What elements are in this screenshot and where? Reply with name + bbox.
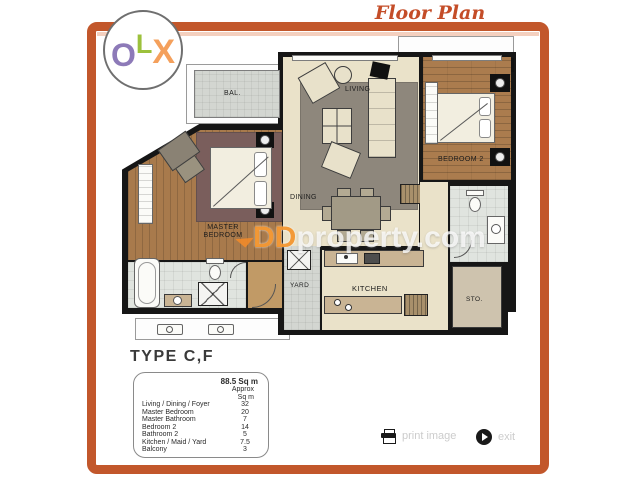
balcony-door: [292, 55, 398, 61]
olx-letter-o: O: [111, 39, 136, 71]
bathtub: [134, 258, 160, 308]
room-kitchen-label: KITCHEN: [352, 284, 388, 293]
bedroom2-window: [432, 55, 502, 61]
ac-unit-dot: [217, 326, 224, 333]
room-dining-label: DINING: [290, 194, 317, 201]
room-living-label: LIVING: [345, 86, 370, 93]
table-row: Kitchen / Maid / Yard7.5: [142, 439, 258, 447]
exit-label: exit: [498, 431, 515, 443]
coffee-table: [322, 108, 352, 144]
nightstand: [490, 148, 510, 166]
shower: [198, 282, 228, 306]
print-image-label: print image: [402, 430, 456, 442]
table-row: Bedroom 214: [142, 424, 258, 432]
room-bedroom2-label: BEDROOM 2: [438, 156, 484, 163]
closet: [138, 164, 153, 224]
area-approx-1: Approx: [142, 386, 258, 394]
area-total: 88.5 Sq m: [142, 377, 258, 386]
type-label: TYPE C,F: [130, 348, 214, 366]
toilet: [469, 197, 481, 212]
toilet-tank: [466, 190, 484, 196]
toilet-tank: [206, 258, 224, 264]
table-row: Master Bathroom7: [142, 416, 258, 424]
bed-pillow: [254, 181, 267, 206]
bed-pillow: [479, 119, 491, 138]
table-row: Living / Dining / Foyer32: [142, 401, 258, 409]
fridge: [404, 294, 428, 316]
room-yard-label: YARD: [290, 282, 309, 289]
sofa: [368, 78, 396, 158]
olx-letter-l: L: [136, 31, 153, 58]
ddproperty-logo-icon: [235, 229, 253, 247]
floor-plan: BAL. LIVING DINING BEDROOM 2 MASTER BEDR…: [0, 0, 640, 480]
table-row: Balcony3: [142, 446, 258, 454]
exit-button[interactable]: exit: [476, 429, 515, 445]
olx-logo: O L X: [103, 10, 183, 90]
table-row: Master Bedroom20: [142, 409, 258, 417]
play-icon: [476, 429, 492, 445]
side-table: [334, 66, 352, 84]
dd-property-watermark: DDproperty.com: [238, 221, 486, 255]
nightstand: [490, 74, 510, 92]
hob-burner: [334, 299, 341, 306]
print-image-button[interactable]: print image: [381, 429, 456, 442]
olx-letter-x: X: [152, 35, 175, 69]
printer-icon: [381, 429, 396, 442]
kitchen-faucet: [344, 255, 348, 259]
room-balcony-label: BAL.: [224, 90, 241, 97]
toilet: [209, 265, 221, 280]
hob-burner: [345, 304, 352, 311]
nightstand: [256, 132, 274, 148]
area-table: 88.5 Sq m Approx Sq m Living / Dining / …: [133, 372, 269, 458]
table-row: Bathroom 25: [142, 431, 258, 439]
dining-chair: [380, 206, 391, 221]
room-storage-label: STO.: [466, 296, 483, 303]
ac-unit-dot: [166, 326, 173, 333]
sink-basin: [173, 296, 182, 305]
area-approx-2: Sq m: [142, 394, 258, 402]
sink-basin: [491, 224, 501, 234]
